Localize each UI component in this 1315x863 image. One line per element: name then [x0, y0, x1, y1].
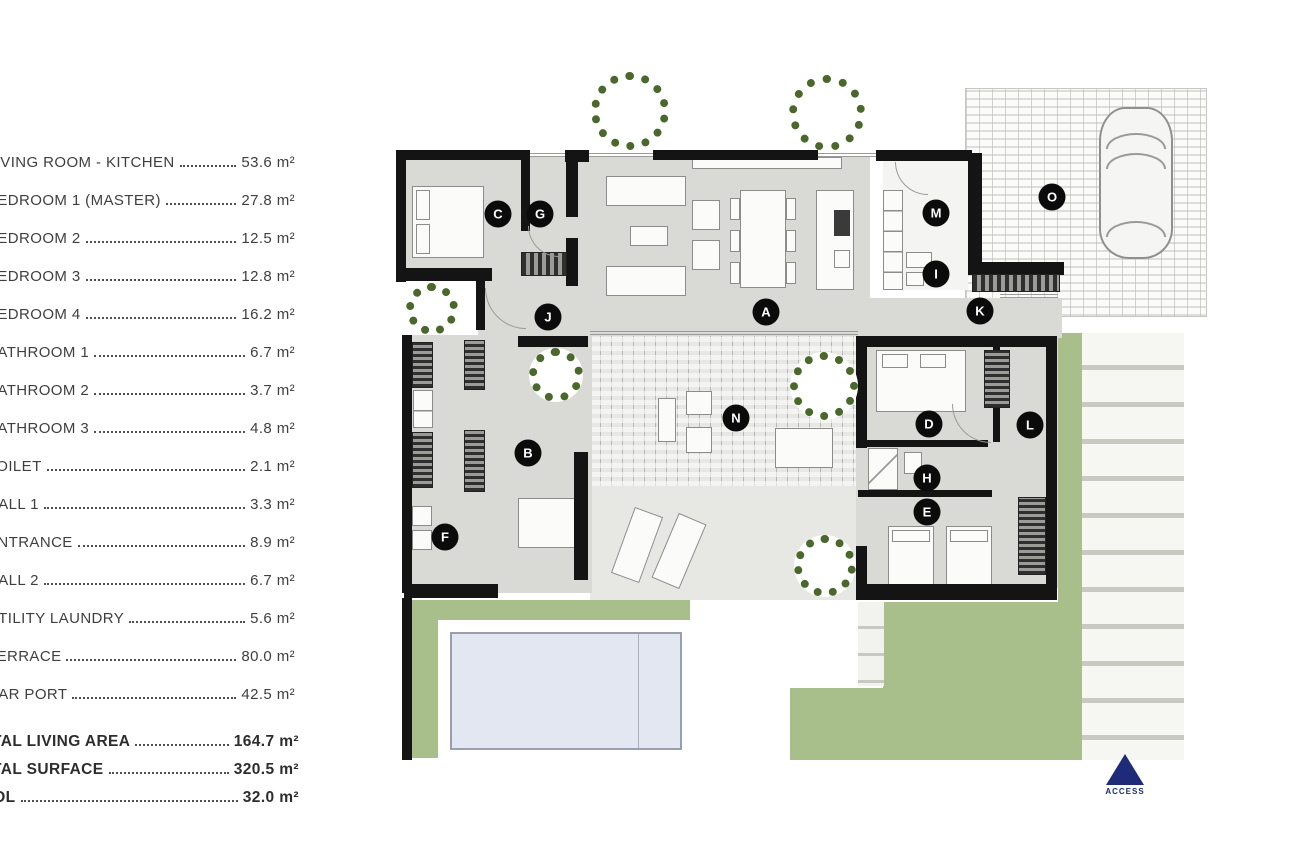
legend-row-label: ENTRANCE: [0, 532, 73, 553]
tree-entrance: [406, 283, 458, 335]
legend-row-label: BEDROOM 2: [0, 228, 81, 249]
legend-total-row-value: 164.7 m²: [234, 731, 299, 752]
car-roof-line: [1106, 153, 1166, 169]
bedroom4-bed: [518, 498, 576, 548]
swimming-pool: [450, 632, 682, 750]
bedroom2-pillow-2: [920, 354, 946, 368]
dining-chair-1: [730, 198, 740, 220]
utility-shelf: [883, 190, 903, 290]
closet-hall-1: [412, 342, 433, 388]
dining-table: [740, 190, 786, 288]
legend-row-leader: [94, 431, 245, 433]
room-marker-m: M: [923, 200, 950, 227]
legend-row-value: 2.1 m²: [250, 456, 295, 477]
legend-total-row-leader: [109, 772, 229, 774]
legend-row: HALL 26.7 m²: [0, 570, 295, 591]
tree-top-center: [789, 75, 865, 151]
dining-chair-2: [730, 230, 740, 252]
wall-master-left: [396, 150, 406, 282]
legend-row-value: 16.2 m²: [241, 304, 295, 325]
garden-steps: [1082, 333, 1184, 760]
legend-row-value: 12.8 m²: [241, 266, 295, 287]
legend-row-value: 53.6 m²: [241, 152, 295, 173]
legend-total-row: TOTAL SURFACE320.5 m²: [0, 759, 299, 780]
legend-row-leader: [86, 241, 237, 243]
legend-row: ENTRANCE8.9 m²: [0, 532, 295, 553]
bedroom2-pillow-1: [882, 354, 908, 368]
legend-total-row-label: TOTAL SURFACE: [0, 759, 104, 780]
wall-entry-left: [476, 278, 485, 330]
closet-hall-2: [464, 340, 485, 390]
armchair-1: [692, 200, 720, 230]
legend-row-label: BATHROOM 2: [0, 380, 89, 401]
legend-total-row-leader: [135, 744, 228, 746]
access-label: ACCESS: [1090, 787, 1160, 796]
legend-row: BEDROOM 212.5 m²: [0, 228, 295, 249]
legend-row: TERRACE80.0 m²: [0, 646, 295, 667]
legend-row-value: 6.7 m²: [250, 570, 295, 591]
wall-planter-top: [518, 336, 588, 347]
stepping-path: [858, 602, 884, 686]
dryer: [412, 530, 432, 550]
toilet-fixture-2: [906, 272, 924, 286]
legend-row-value: 5.6 m²: [250, 608, 295, 629]
vent-corridor-k: [972, 274, 1060, 292]
lawn-upper-right: [883, 602, 1060, 688]
room-marker-f: F: [432, 524, 459, 551]
master-pillow-1: [416, 190, 430, 220]
wall-living-left-top: [566, 153, 578, 217]
legend-row-value: 27.8 m²: [241, 190, 295, 211]
closet-bedroom3: [1018, 497, 1046, 575]
room-marker-l: L: [1017, 412, 1044, 439]
vent-master: [521, 252, 567, 276]
master-pillow-2: [416, 224, 430, 254]
legend-row-value: 3.7 m²: [250, 380, 295, 401]
legend-row: BATHROOM 34.8 m²: [0, 418, 295, 439]
legend-row-leader: [86, 317, 237, 319]
dining-chair-4: [786, 198, 796, 220]
legend-row-value: 6.7 m²: [250, 342, 295, 363]
legend-row-label: UTILITY LAUNDRY: [0, 608, 124, 629]
room-marker-i: I: [923, 261, 950, 288]
sofa-1: [606, 176, 686, 206]
legend-row-leader: [94, 355, 245, 357]
legend-row-leader: [166, 203, 236, 205]
room-marker-j: J: [535, 304, 562, 331]
wall-top-right: [876, 150, 972, 161]
bedroom3-pillow-1: [892, 530, 930, 542]
car-rear-line: [1106, 221, 1166, 237]
outdoor-table: [775, 428, 833, 468]
wall-bed4-right: [574, 452, 588, 580]
wall-hall-bottom: [404, 584, 498, 598]
legend-row-label: HALL 2: [0, 570, 39, 591]
legend-row-leader: [72, 697, 236, 699]
legend-row: BEDROOM 1 (MASTER)27.8 m²: [0, 190, 295, 211]
room-marker-a: A: [753, 299, 780, 326]
legend-total-row-label: TOTAL LIVING AREA: [0, 731, 130, 752]
bedroom3-pillow-2: [950, 530, 988, 542]
wall-wing-bottom: [856, 584, 1057, 600]
legend-row: BATHROOM 23.7 m²: [0, 380, 295, 401]
legend-row-label: BEDROOM 4: [0, 304, 81, 325]
wall-utility-right: [968, 153, 982, 275]
legend-row-leader: [129, 621, 245, 623]
legend-row: CAR PORT42.5 m²: [0, 684, 295, 705]
room-marker-e: E: [914, 499, 941, 526]
tree-garden: [794, 535, 856, 597]
terrace-chair-1: [686, 391, 712, 415]
lawn-pool-top: [404, 600, 690, 620]
area-legend: LIVING ROOM - KITCHEN53.6 m²BEDROOM 1 (M…: [0, 152, 295, 815]
window-terrace: [590, 331, 858, 335]
legend-row-label: BEDROOM 1 (MASTER): [0, 190, 161, 211]
kitchen-sink: [834, 250, 850, 268]
legend-row-label: CAR PORT: [0, 684, 67, 705]
window-kitchen: [818, 153, 876, 157]
terrace-chair-2: [686, 427, 712, 453]
legend-row-value: 42.5 m²: [241, 684, 295, 705]
legend-row: UTILITY LAUNDRY5.6 m²: [0, 608, 295, 629]
wall-living-top: [653, 150, 818, 160]
room-marker-n: N: [723, 405, 750, 432]
dining-chair-6: [786, 262, 796, 284]
legend-total-row-value: 320.5 m²: [234, 759, 299, 780]
armchair-2: [692, 240, 720, 270]
legend-total-row: TOTAL LIVING AREA164.7 m²: [0, 731, 299, 752]
room-marker-k: K: [967, 298, 994, 325]
car-icon: [1099, 107, 1173, 259]
terrace-chair-3: [658, 398, 676, 442]
dining-chair-5: [786, 230, 796, 252]
window-master: [530, 153, 566, 157]
tree-top-left: [591, 72, 669, 150]
legend-total-row: POOL32.0 m²: [0, 787, 299, 808]
kitchen-island: [816, 190, 854, 290]
wall-wing-right: [1046, 336, 1057, 594]
lawn-lower-right: [790, 688, 1062, 760]
dining-chair-3: [730, 262, 740, 284]
legend-row-value: 12.5 m²: [241, 228, 295, 249]
room-marker-b: B: [515, 440, 542, 467]
wall-wing-left-top: [856, 336, 867, 448]
legend-row-label: HALL 1: [0, 494, 39, 515]
legend-row-leader: [78, 545, 245, 547]
legend-row-leader: [66, 659, 236, 661]
legend-row: LIVING ROOM - KITCHEN53.6 m²: [0, 152, 295, 173]
room-marker-d: D: [916, 411, 943, 438]
pool-ladder-line: [638, 634, 639, 748]
legend-row-label: BEDROOM 3: [0, 266, 81, 287]
car-windshield-line: [1106, 133, 1166, 149]
legend-row-leader: [94, 393, 245, 395]
kitchen-hob: [834, 210, 850, 236]
legend-total-row-leader: [21, 800, 238, 802]
wall-bed2-bath3: [858, 440, 988, 447]
legend-row-leader: [44, 583, 245, 585]
legend-row: TOILET2.1 m²: [0, 456, 295, 477]
legend-row-label: TOILET: [0, 456, 42, 477]
legend-row-label: BATHROOM 3: [0, 418, 89, 439]
closet-hall-3: [412, 432, 433, 488]
window-living: [589, 153, 653, 157]
shower-bath3: [868, 448, 898, 490]
legend-total-row-label: POOL: [0, 787, 16, 808]
legend-row: BEDROOM 312.8 m²: [0, 266, 295, 287]
wall-living-left-bottom: [566, 238, 578, 286]
closet-hall-4: [464, 430, 485, 492]
site-wall-left: [402, 598, 412, 760]
legend-rows: LIVING ROOM - KITCHEN53.6 m²BEDROOM 1 (M…: [0, 152, 295, 705]
hall-shelf: [413, 390, 433, 428]
legend-row: BATHROOM 16.7 m²: [0, 342, 295, 363]
legend-row-value: 4.8 m²: [250, 418, 295, 439]
legend-row-value: 8.9 m²: [250, 532, 295, 553]
legend-row-leader: [86, 279, 237, 281]
wall-master-top: [396, 150, 530, 160]
legend-row-value: 3.3 m²: [250, 494, 295, 515]
floor-corridor-k: [870, 298, 1062, 338]
coffee-table: [630, 226, 668, 246]
legend-row: HALL 13.3 m²: [0, 494, 295, 515]
legend-row-label: BATHROOM 1: [0, 342, 89, 363]
floor-plan-page: { "legend": { "unit": "m²", "rows": [ {"…: [0, 0, 1315, 863]
legend-row-leader: [180, 165, 237, 167]
closet-bedroom2: [984, 350, 1010, 408]
window-corridor-k: [1000, 294, 1058, 298]
room-marker-o: O: [1039, 184, 1066, 211]
legend-total-row-value: 32.0 m²: [243, 787, 299, 808]
legend-row-label: LIVING ROOM - KITCHEN: [0, 152, 175, 173]
access-arrow-icon: [1106, 754, 1144, 785]
washer: [412, 506, 432, 526]
legend-row-leader: [47, 469, 245, 471]
legend-row: BEDROOM 416.2 m²: [0, 304, 295, 325]
room-marker-g: G: [527, 201, 554, 228]
legend-totals: TOTAL LIVING AREA164.7 m²TOTAL SURFACE32…: [0, 731, 295, 808]
room-marker-h: H: [914, 465, 941, 492]
tree-planter: [529, 348, 583, 402]
room-marker-c: C: [485, 201, 512, 228]
legend-row-value: 80.0 m²: [241, 646, 295, 667]
wall-hall-left: [402, 335, 412, 593]
sofa-2: [606, 266, 686, 296]
legend-row-leader: [44, 507, 245, 509]
tree-terrace: [790, 352, 858, 420]
wall-wing-top: [856, 336, 1057, 347]
legend-row-label: TERRACE: [0, 646, 61, 667]
